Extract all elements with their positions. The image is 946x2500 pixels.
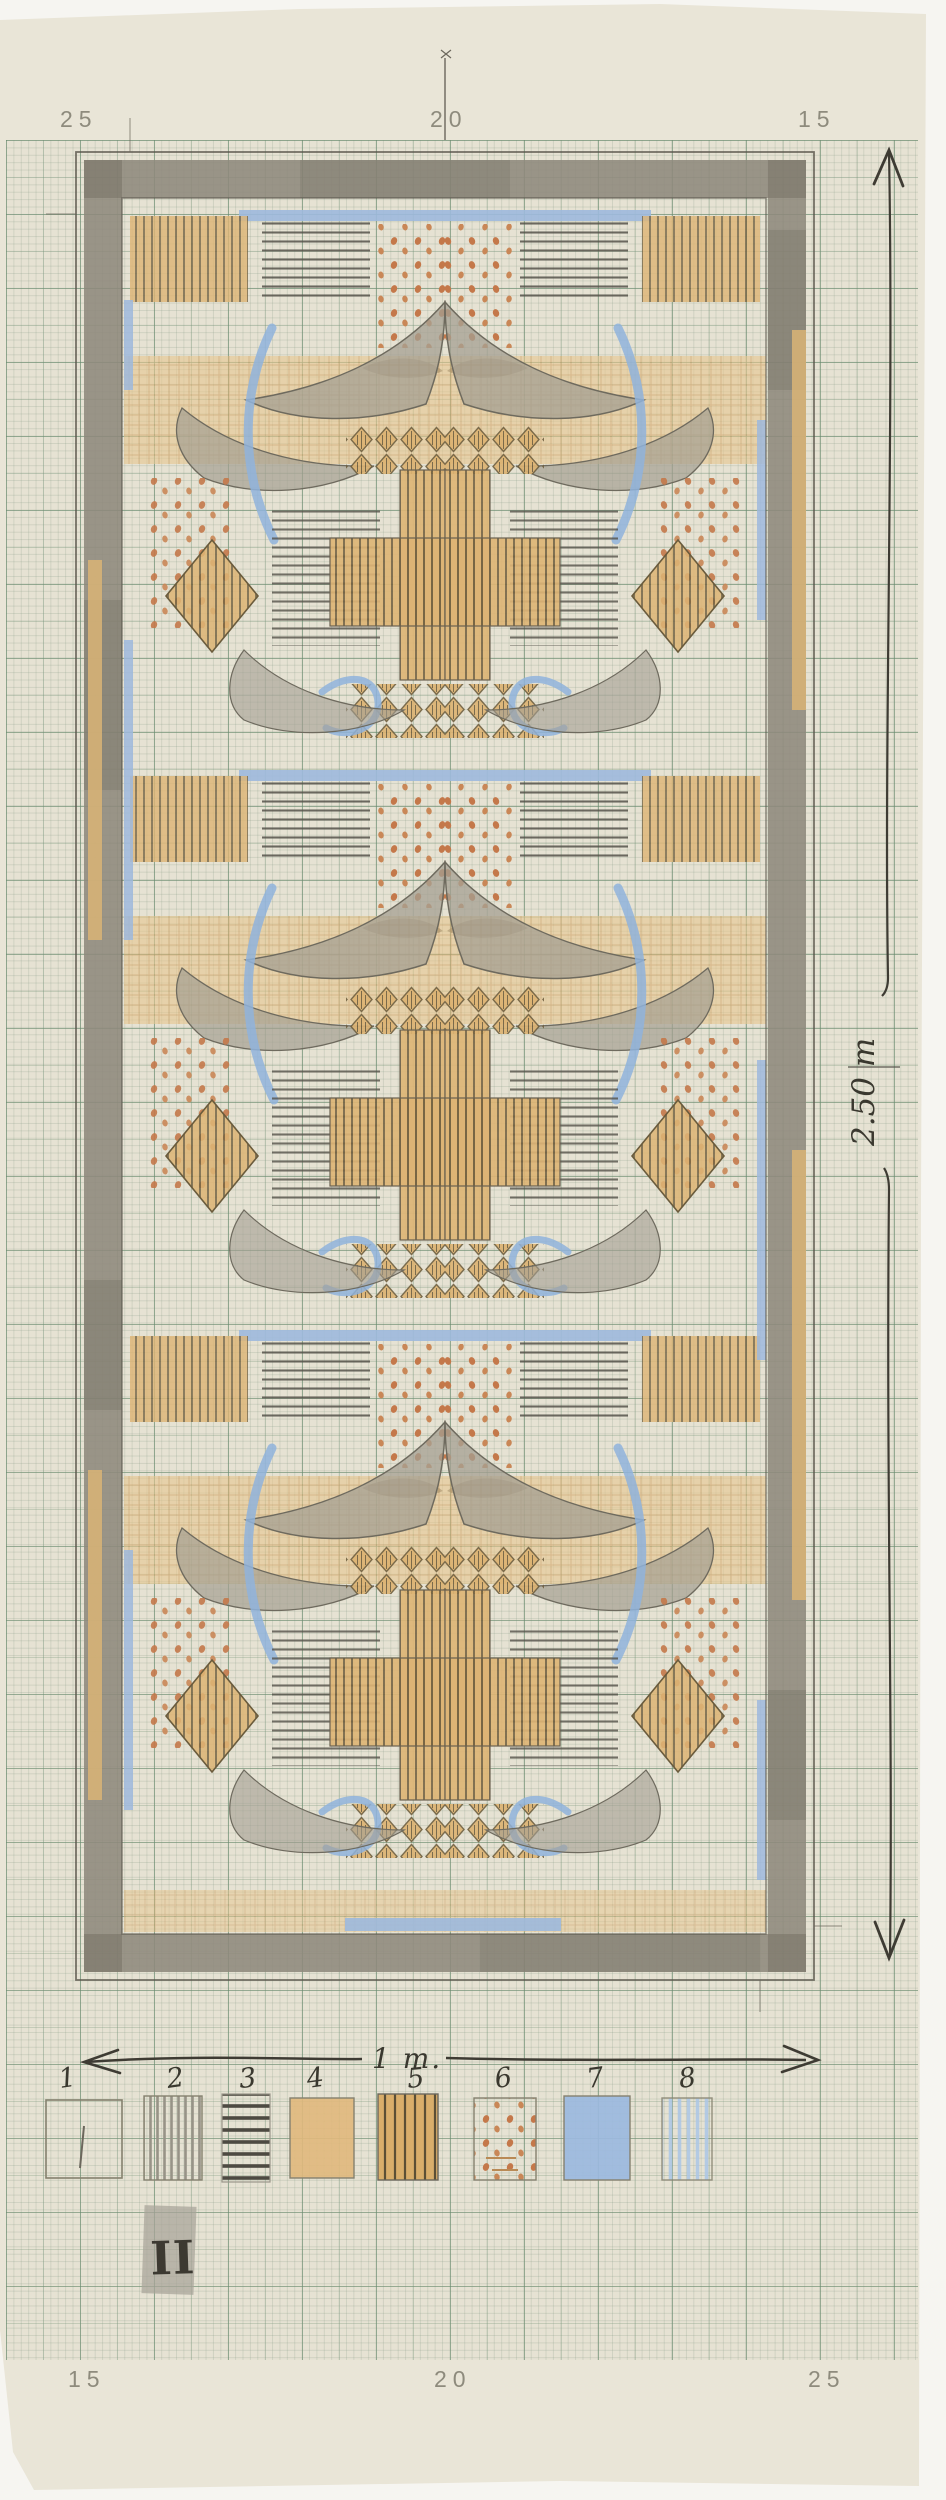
legend-number-3: 3 [237, 2062, 257, 2095]
height-dimension-label: 2.50 m [846, 1038, 882, 1147]
scale-bar: 1 m. [84, 2042, 818, 2075]
legend-number-7: 7 [585, 2062, 607, 2095]
height-dimension: 2.50 m [846, 150, 904, 1958]
legend-swatch-solid-blue [564, 2096, 630, 2180]
legend-swatch-dark-horizontal-stripes [222, 2094, 270, 2182]
carpet-design-drawing: 2.50 m 1 m. 1 2 3 4 5 6 7 8 [0, 0, 946, 2500]
sheet-number-mark: II [141, 2205, 196, 2295]
legend-swatch-orange-dots [474, 2098, 536, 2180]
legend-swatch-gray-vertical-hatch [144, 2096, 202, 2180]
legend-swatch-pale-blue-hatch [662, 2098, 712, 2180]
legend-number-6: 6 [493, 2062, 514, 2095]
carpet-field-motifs [124, 210, 766, 1932]
legend: 1 2 3 4 5 6 7 8 [46, 2062, 712, 2182]
legend-number-1: 1 [57, 2062, 78, 2095]
legend-number-4: 4 [304, 2062, 326, 2095]
legend-number-8: 8 [677, 2062, 698, 2095]
legend-number-2: 2 [164, 2062, 186, 2095]
top-centre-pencil-tick [441, 50, 451, 140]
legend-number-5: 5 [405, 2062, 425, 2095]
scanned-design-sheet: 25 20 15 15 20 25 [0, 0, 946, 2500]
sheet-number-label: II [149, 2230, 196, 2286]
legend-swatch-solid-ochre [290, 2098, 354, 2178]
legend-swatch-ochre-vertical-stripes [378, 2094, 438, 2180]
legend-swatch-plain-ground [46, 2100, 122, 2178]
